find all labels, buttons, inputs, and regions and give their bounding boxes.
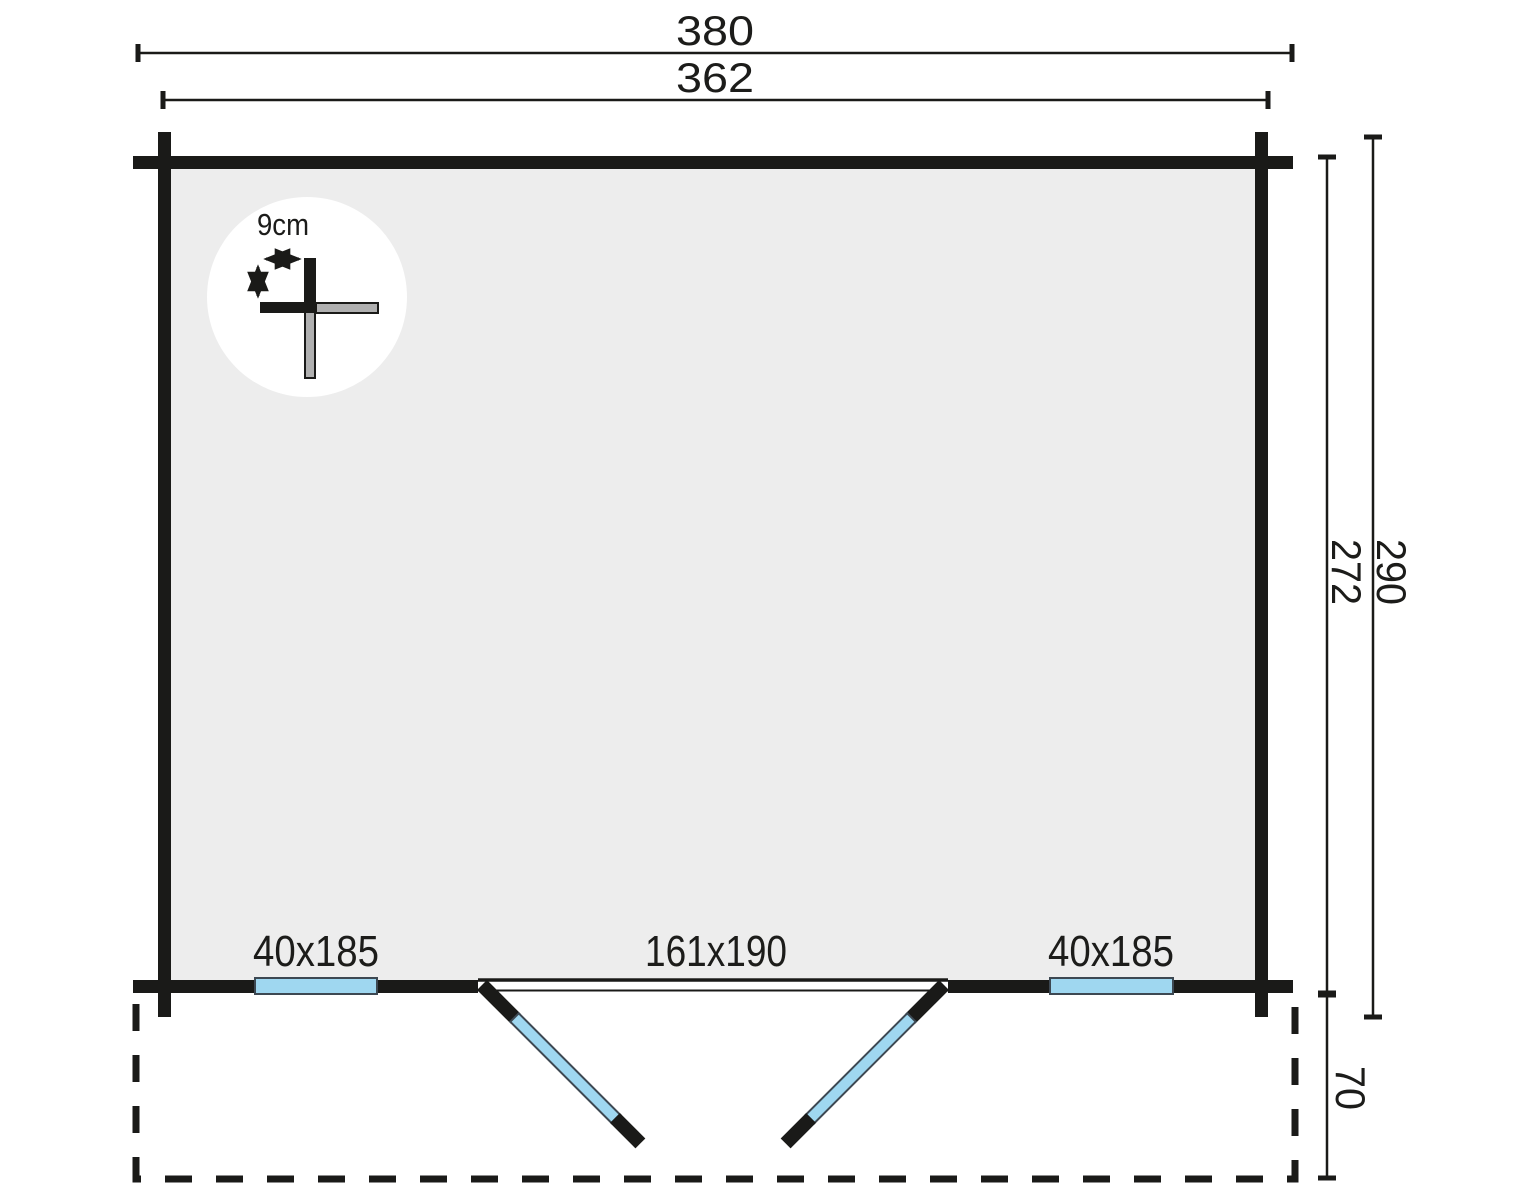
window-left-label: 40x185	[253, 927, 379, 976]
door-leaf-right-pane	[805, 1013, 915, 1123]
wall-left	[158, 132, 171, 1017]
door-leaf-left-tip	[610, 1113, 645, 1148]
door-opening	[478, 978, 948, 995]
wall-bottom-segment-4	[1173, 980, 1293, 993]
wall-top	[133, 156, 1293, 169]
window-right-label: 40x185	[1048, 927, 1174, 976]
door-leaf-left-pane	[510, 1013, 620, 1123]
inner-width-dimension: 362	[163, 54, 1268, 109]
terrace-depth-value: 70	[1327, 1066, 1374, 1110]
door-leaf-right-tip	[781, 1113, 816, 1148]
door-leaf-right	[781, 980, 949, 1148]
wall-right	[1255, 132, 1268, 1017]
terrace-outline	[136, 1004, 1295, 1179]
floor-plan-drawing: 9cm 380 3	[0, 0, 1530, 1188]
door-label: 161x190	[645, 927, 787, 976]
outer-width-value: 380	[676, 7, 754, 54]
wall-bottom-segment-1	[133, 980, 255, 993]
inner-depth-dimension: 272	[1318, 157, 1370, 993]
inner-width-value: 362	[676, 54, 754, 101]
door-leaf-left	[477, 980, 645, 1148]
window-left	[255, 978, 377, 994]
terrace-depth-dimension: 70	[1318, 995, 1374, 1178]
wall-bottom-segment-3	[948, 980, 1050, 993]
log-black-vertical	[304, 258, 316, 313]
window-right	[1050, 978, 1173, 994]
log-gray-horizontal	[315, 303, 378, 313]
log-gray-vertical	[305, 312, 315, 378]
outer-depth-dimension: 290	[1364, 137, 1415, 1017]
inner-depth-value: 272	[1323, 539, 1370, 605]
outer-depth-value: 290	[1368, 539, 1415, 605]
log-detail-magnifier: 9cm	[207, 197, 407, 397]
floor-plan-page: 9cm 380 3	[0, 0, 1530, 1188]
wall-bottom-segment-2	[377, 980, 478, 993]
log-thickness-label: 9cm	[257, 207, 309, 242]
